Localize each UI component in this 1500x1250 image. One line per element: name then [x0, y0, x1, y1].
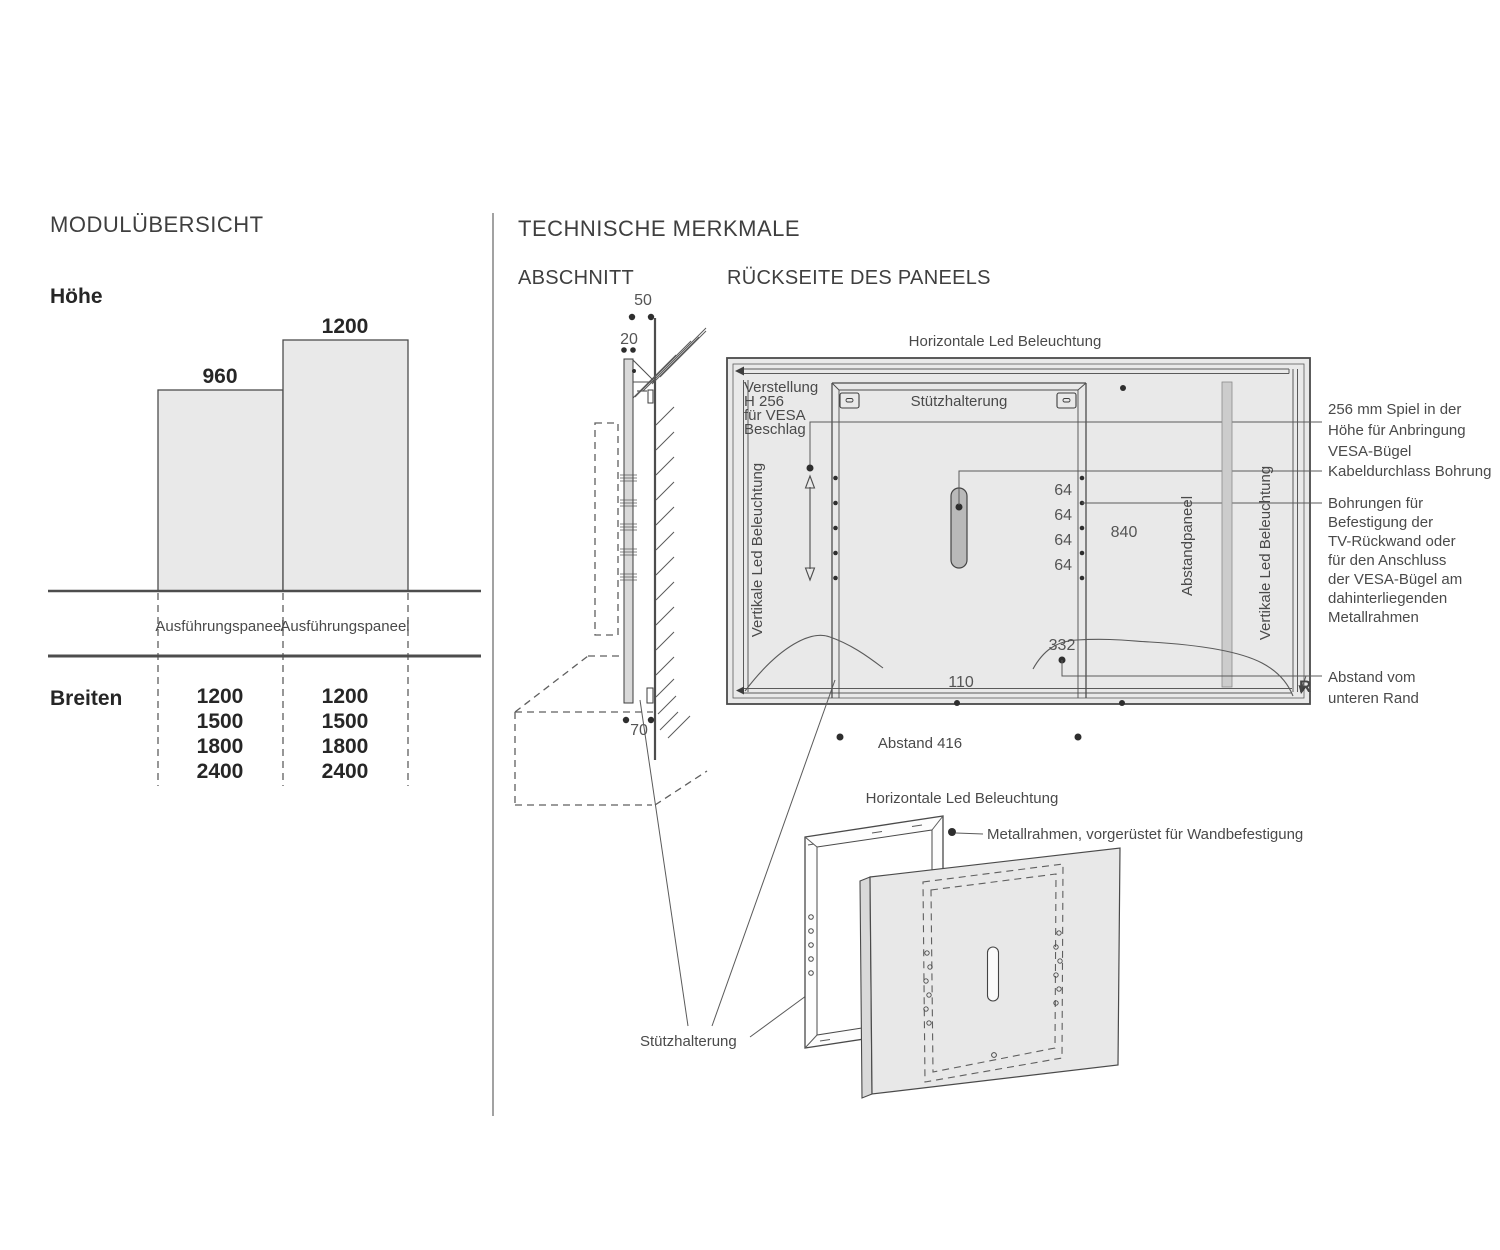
dim-20: 20 [620, 331, 638, 348]
width-value: 1800 [322, 735, 369, 758]
dim-64-2: 64 [1054, 507, 1072, 524]
width-values-col1: 1200 1500 1800 2400 [197, 685, 244, 783]
height-label: Höhe [50, 285, 103, 308]
callout-bottom-edge: Abstand vom unteren Rand [1328, 669, 1419, 707]
width-values-col2: 1200 1500 1800 2400 [322, 685, 369, 783]
width-value: 1500 [322, 710, 369, 733]
height-bar-1200 [283, 340, 408, 591]
bar-value-960: 960 [202, 365, 237, 388]
dim-64-4: 64 [1054, 557, 1072, 574]
callout-line: Höhe für Anbringung [1328, 422, 1466, 439]
top-bracket-section [648, 390, 653, 403]
spacer-panel-bar [1222, 382, 1232, 687]
callout-line: der VESA-Bügel am [1328, 571, 1462, 588]
frame-label-leader [956, 833, 983, 834]
technical-title: TECHNISCHE MERKMALE [518, 216, 800, 241]
callout-cable: Kabeldurchlass Bohrung [1328, 463, 1491, 480]
vesa-line: Beschlag [744, 421, 806, 438]
bottom-bracket-section [647, 688, 653, 703]
callouts: 256 mm Spiel in der Höhe für Anbringung … [1328, 401, 1491, 707]
callout-line: dahinterliegenden [1328, 590, 1447, 607]
spacer-panel-label: Abstandpaneel [1179, 496, 1196, 596]
width-value: 1500 [197, 710, 244, 733]
column-header-2: Ausführungspaneel [280, 618, 409, 635]
exploded-view: Horizontale Led Beleuchtung [640, 680, 1303, 1098]
cabinet-dashed-outline [515, 656, 707, 805]
callout-line: VESA-Bügel [1328, 443, 1411, 460]
dim-110: 110 [948, 674, 974, 691]
corner-r-mark: R [1299, 677, 1311, 696]
callout-line: Befestigung der [1328, 514, 1433, 531]
vertical-led-label-right: Vertikale Led Beleuchtung [1257, 466, 1274, 640]
callout-line: Abstand vom [1328, 669, 1416, 686]
callout-line: 256 mm Spiel in der [1328, 401, 1461, 418]
frame-bracket-label: Stützhalterung [911, 393, 1008, 410]
section-drawing: 50 20 [515, 292, 707, 805]
height-bar-960 [158, 390, 283, 591]
bracket-label-bottom: Stützhalterung [640, 1033, 737, 1050]
module-overview: MODULÜBERSICHT Höhe 960 1200 Ausführungs… [48, 212, 481, 786]
panel-cable-slot [988, 947, 999, 1001]
tv-dashed-outline [595, 423, 618, 635]
back-panel-drawing: Horizontale Led Beleuchtung Stützhalteru… [727, 333, 1322, 752]
callout-vesa-play: 256 mm Spiel in der Höhe für Anbringung … [1328, 401, 1466, 460]
section-heading: ABSCHNITT [518, 267, 634, 289]
module-overview-title: MODULÜBERSICHT [50, 212, 264, 237]
metal-frame-label: Metallrahmen, vorgerüstet für Wandbefest… [987, 826, 1303, 843]
dim-64-3: 64 [1054, 532, 1072, 549]
vertical-led-label-left: Vertikale Led Beleuchtung [749, 463, 766, 637]
callout-line: Bohrungen für [1328, 495, 1423, 512]
width-value: 1800 [197, 735, 244, 758]
horizontal-led-label-exploded: Horizontale Led Beleuchtung [866, 790, 1059, 807]
width-value: 1200 [322, 685, 369, 708]
bar-value-1200: 1200 [322, 315, 369, 338]
column-header-1: Ausführungspaneel [155, 618, 284, 635]
width-value: 2400 [197, 760, 244, 783]
dim-840: 840 [1111, 524, 1138, 541]
callout-line: Metallrahmen [1328, 609, 1419, 626]
width-value: 2400 [322, 760, 369, 783]
callout-holes: Bohrungen für Befestigung der TV-Rückwan… [1328, 495, 1462, 626]
dim-64-1: 64 [1054, 482, 1072, 499]
technical-sheet: MODULÜBERSICHT Höhe 960 1200 Ausführungs… [0, 0, 1500, 1250]
widths-label: Breiten [50, 687, 122, 710]
wall-hatching [628, 328, 706, 738]
callout-line: TV-Rückwand oder [1328, 533, 1456, 550]
dim-332: 332 [1049, 637, 1076, 654]
back-heading: RÜCKSEITE DES PANEELS [727, 267, 991, 289]
dim-50: 50 [634, 292, 652, 309]
callout-line: unteren Rand [1328, 690, 1419, 707]
width-value: 1200 [197, 685, 244, 708]
abstand-416-label: Abstand 416 [878, 735, 962, 752]
horizontal-led-label-top: Horizontale Led Beleuchtung [909, 333, 1102, 350]
callout-line: für den Anschluss [1328, 552, 1446, 569]
exploded-panel [860, 848, 1120, 1098]
panel-section-strip [624, 359, 633, 703]
